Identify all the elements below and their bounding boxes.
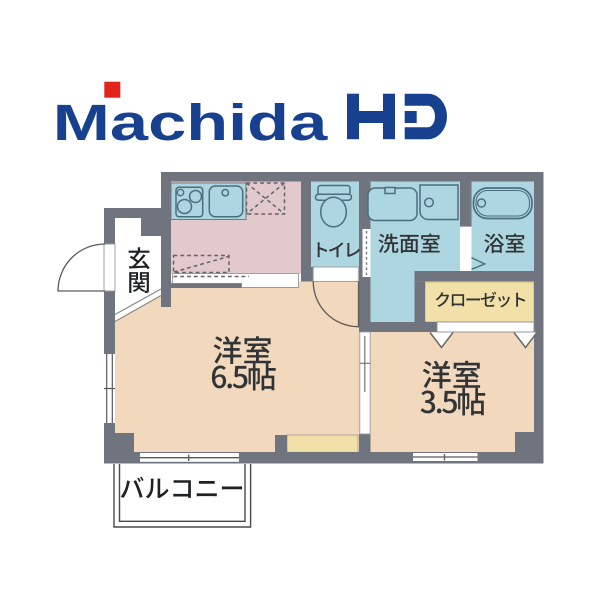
svg-text:Machida: Machida (53, 94, 328, 151)
